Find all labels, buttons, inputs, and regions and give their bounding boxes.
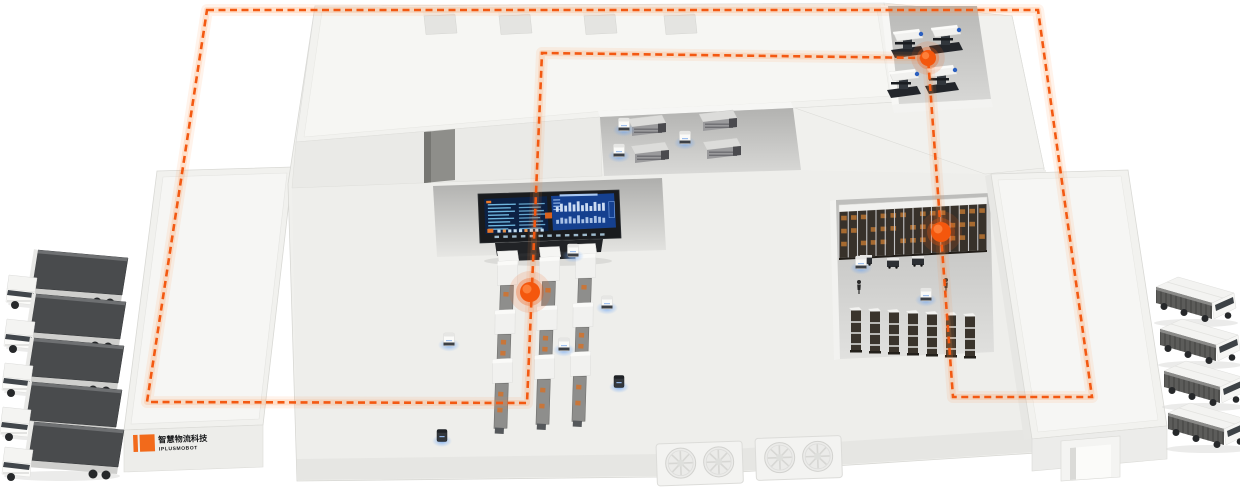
rack-box	[900, 213, 906, 218]
truck-right	[1158, 319, 1240, 369]
rack-box	[900, 239, 906, 244]
route-waypoint	[509, 271, 551, 313]
logo-mark-bar	[133, 435, 138, 452]
hvac-unit	[656, 441, 743, 486]
rack-box	[841, 229, 847, 234]
route-waypoint	[920, 211, 962, 253]
rack-box	[969, 209, 975, 214]
rack-box	[861, 215, 867, 220]
workbench-machine	[703, 138, 741, 159]
left-building: 智慧物流科技 IPLUSMOBOT	[124, 167, 293, 472]
route-waypoint	[911, 41, 945, 75]
rack-box	[890, 213, 896, 218]
truck-fleet-left	[0, 249, 128, 481]
hvac-unit	[755, 435, 842, 480]
rack-box	[979, 208, 985, 213]
dashboard-screen-right	[551, 193, 616, 230]
truck-right	[1162, 361, 1240, 411]
factory-scene-svg: 智慧物流科技 IPLUSMOBOT	[0, 0, 1240, 488]
fan-icon	[764, 442, 795, 473]
rack-box	[851, 228, 857, 233]
roof-vent	[499, 15, 532, 35]
logo-mark-square	[139, 434, 155, 452]
smart-factory-illustration: 智慧物流科技 IPLUSMOBOT	[0, 0, 1240, 488]
logo-text-cn: 智慧物流科技	[157, 433, 208, 445]
workbench-machine	[699, 110, 737, 131]
rack-box	[890, 226, 896, 231]
truck-right	[1166, 403, 1240, 453]
roof-vent	[584, 15, 617, 35]
dock-doorway-opening	[1070, 445, 1111, 481]
roof-vent	[664, 15, 697, 35]
rack-box	[861, 241, 867, 246]
door-opening-shade	[424, 132, 431, 184]
center-bay-floor	[600, 108, 801, 176]
rack-box	[960, 209, 966, 214]
rack-box	[920, 211, 926, 216]
rack-box	[851, 215, 857, 220]
rack-box	[969, 222, 975, 227]
dock-doorway-shade	[1070, 448, 1076, 481]
brand-logo: 智慧物流科技 IPLUSMOBOT	[133, 432, 209, 453]
fan-icon	[703, 446, 734, 477]
workbench-machine	[631, 142, 669, 163]
storage-racks	[839, 197, 987, 260]
fan-icon	[802, 441, 833, 472]
rack-box	[841, 216, 847, 221]
roof-vent	[424, 15, 457, 35]
rack-box	[979, 234, 985, 239]
truck-right	[1154, 277, 1238, 327]
rack-box	[841, 242, 847, 247]
fan-icon	[665, 448, 696, 479]
